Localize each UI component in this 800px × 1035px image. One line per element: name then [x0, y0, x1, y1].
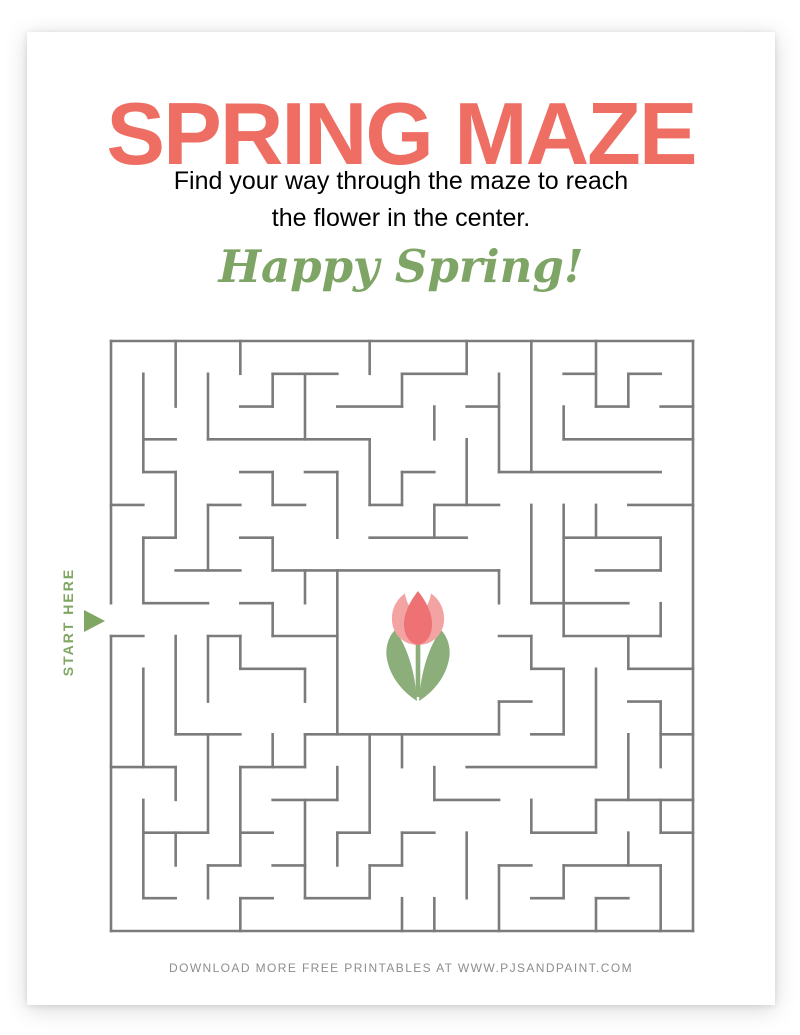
greeting-text: Happy Spring!	[27, 242, 775, 292]
tulip-icon	[386, 591, 449, 701]
start-here-label: START HERE	[60, 562, 78, 682]
tulip-stem	[416, 639, 421, 697]
footer-text: DOWNLOAD MORE FREE PRINTABLES AT WWW.PJS…	[27, 961, 775, 975]
maze	[111, 341, 693, 931]
start-arrow-icon	[84, 610, 105, 632]
tulip-petal-inner	[404, 591, 432, 645]
subtitle-line-1: Find your way through the maze to reach	[27, 163, 775, 200]
printable-page: SPRING MAZE Find your way through the ma…	[27, 32, 775, 1005]
screenshot-root: { "page": { "title": "SPRING MAZE", "sub…	[0, 0, 800, 1035]
maze-svg	[111, 341, 693, 931]
subtitle-line-2: the flower in the center.	[27, 200, 775, 237]
subtitle: Find your way through the maze to reach …	[27, 163, 775, 237]
